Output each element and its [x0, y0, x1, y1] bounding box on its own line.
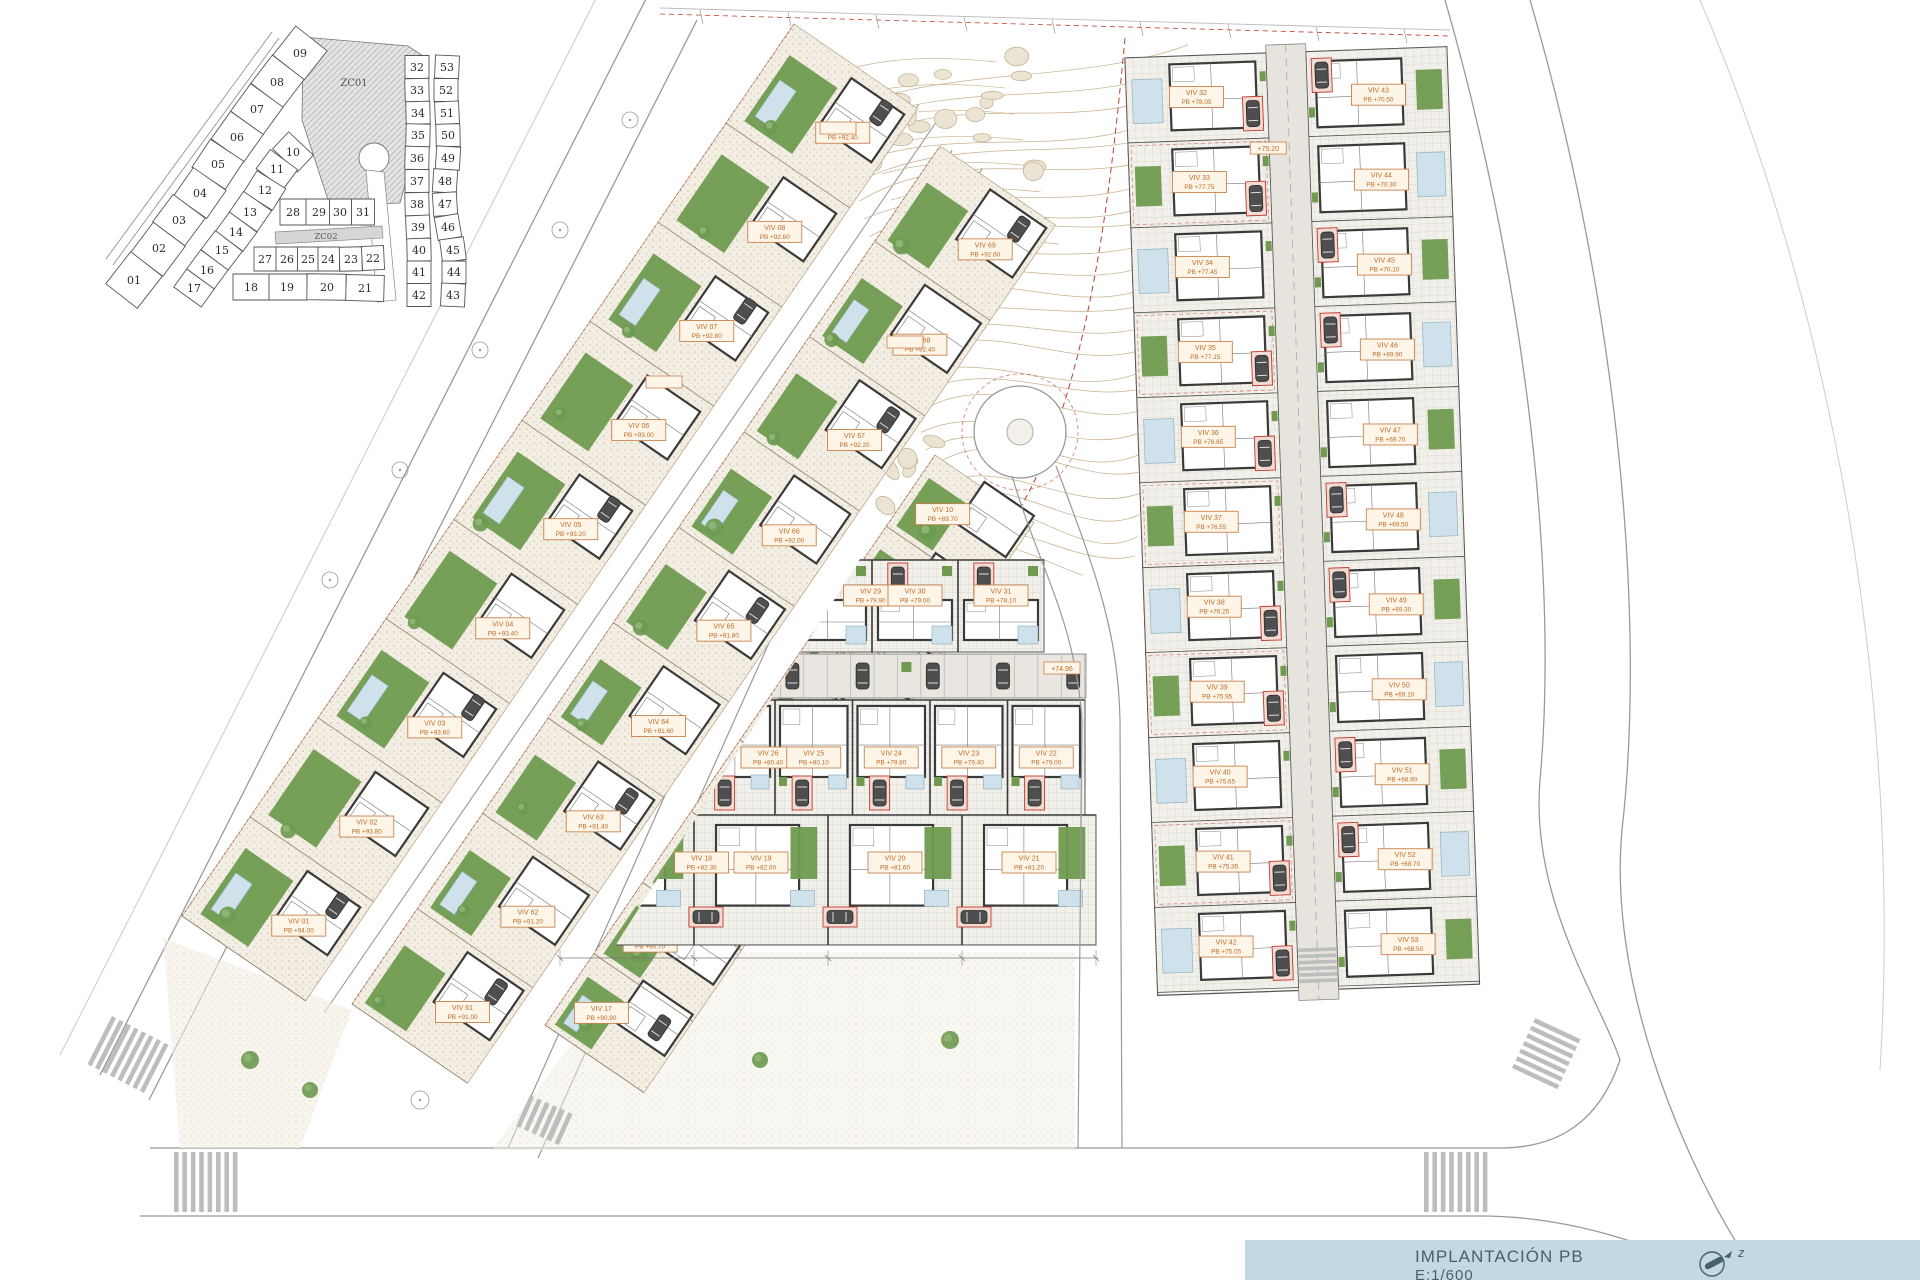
villa-label: VIV 38PB +76.25 [1187, 596, 1241, 617]
car-icon [997, 663, 1010, 689]
svg-text:PB +78.05: PB +78.05 [1181, 99, 1211, 106]
tree-icon [554, 408, 567, 421]
svg-text:PB +77.45: PB +77.45 [1187, 269, 1217, 276]
svg-text:13: 13 [243, 206, 257, 219]
svg-text:50: 50 [441, 129, 455, 142]
keyplan-band: 28293031 [280, 199, 375, 225]
svg-text:PB +92.60: PB +92.60 [970, 251, 1000, 258]
villa-label: VIV 41PB +75.35 [1196, 851, 1250, 872]
svg-text:PB +91.00: PB +91.00 [448, 1014, 478, 1021]
tree-icon [705, 519, 723, 537]
svg-text:VIV 22: VIV 22 [1036, 751, 1057, 758]
car-icon [1321, 232, 1335, 258]
svg-text:+74.96: +74.96 [1051, 666, 1073, 673]
svg-text:43: 43 [446, 289, 460, 302]
car-icon [856, 663, 869, 689]
villa-label: VIV 04PB +93.40 [476, 618, 530, 639]
svg-text:PB +93.20: PB +93.20 [556, 531, 586, 538]
villa-label: VIV 67PB +92.20 [828, 430, 882, 451]
svg-text:PB +92.20: PB +92.20 [840, 442, 870, 449]
svg-text:VIV 44: VIV 44 [1371, 173, 1392, 180]
svg-text:27: 27 [258, 253, 272, 266]
svg-text:PB +68.50: PB +68.50 [1393, 946, 1423, 953]
car-icon [1276, 950, 1290, 976]
svg-text:VIV 42: VIV 42 [1216, 940, 1237, 947]
villa-label: VIV 22PB +79.00 [1019, 747, 1073, 768]
villa-label: VIV 23PB +79.40 [942, 747, 996, 768]
villa-label: VIV 06PB +93.00 [612, 420, 666, 441]
villa-label: VIV 34PB +77.45 [1175, 256, 1229, 277]
svg-text:36: 36 [410, 152, 424, 165]
svg-text:VIV 45: VIV 45 [1374, 258, 1395, 265]
villa-label: VIV 03PB +93.60 [408, 717, 462, 738]
svg-text:VIV 48: VIV 48 [1383, 512, 1404, 519]
keyplan-band: 3233343536373839404142 [405, 56, 431, 307]
svg-text:PB +78.10: PB +78.10 [986, 598, 1016, 605]
svg-text:12: 12 [258, 184, 272, 197]
tree-icon [941, 1031, 959, 1049]
svg-text:07: 07 [250, 103, 264, 116]
villa-label: VIV 66PB +92.00 [762, 525, 816, 546]
svg-text:VIV 25: VIV 25 [803, 751, 824, 758]
svg-text:+75.20: +75.20 [1257, 146, 1279, 153]
svg-text:PB +79.40: PB +79.40 [954, 760, 984, 767]
drawing-scale: E:1/600 [1415, 1267, 1584, 1280]
parking-pad [1272, 946, 1293, 981]
villa-label: VIV 02PB +93.80 [340, 816, 394, 837]
tree-icon [373, 995, 386, 1008]
architectural-site-plan: VIV 01PB +94.00VIV 02PB +93.80VIV 03PB +… [0, 0, 1920, 1280]
villa-label: VIV 47PB +69.70 [1363, 424, 1417, 445]
svg-text:VIV 24: VIV 24 [881, 751, 902, 758]
villa-label: VIV 64PB +91.60 [632, 716, 686, 737]
elevation-marker: +74.96 [1044, 662, 1080, 674]
svg-text:PB +82.00: PB +82.00 [746, 865, 776, 872]
svg-text:VIV 43: VIV 43 [1368, 88, 1389, 95]
svg-text:31: 31 [356, 206, 370, 219]
parking-pad [1320, 313, 1341, 348]
tree-icon [241, 1051, 259, 1069]
svg-text:PB +80.10: PB +80.10 [799, 760, 829, 767]
svg-text:15: 15 [215, 244, 229, 257]
car-icon [796, 780, 809, 806]
elevation-marker [646, 376, 682, 388]
tree-icon [633, 620, 649, 636]
car-icon [926, 663, 939, 689]
svg-text:VIV 50: VIV 50 [1389, 682, 1410, 689]
svg-text:53: 53 [440, 61, 454, 74]
car-icon [786, 663, 799, 689]
svg-text:PB +92.00: PB +92.00 [774, 537, 804, 544]
tree-icon [697, 225, 712, 240]
parking-pad [823, 907, 857, 927]
svg-text:28: 28 [286, 206, 300, 219]
svg-text:PB +93.00: PB +93.00 [624, 432, 654, 439]
car-icon [827, 911, 853, 924]
svg-text:18: 18 [244, 281, 258, 294]
svg-text:VIV 29: VIV 29 [860, 589, 881, 596]
svg-text:30: 30 [333, 206, 347, 219]
parking-pad [957, 907, 991, 927]
svg-text:PB +79.90: PB +79.90 [856, 598, 886, 605]
svg-text:19: 19 [280, 281, 294, 294]
svg-text:VIV 69: VIV 69 [975, 242, 996, 249]
svg-text:14: 14 [229, 226, 243, 239]
svg-text:PB +69.50: PB +69.50 [1378, 521, 1408, 528]
svg-text:VIV 10: VIV 10 [932, 507, 953, 514]
crosswalk [1512, 1018, 1581, 1089]
tree-outline-icon [411, 1091, 429, 1109]
car-icon [1273, 865, 1287, 891]
svg-text:PB +92.60: PB +92.60 [760, 234, 790, 241]
svg-text:VIV 01: VIV 01 [288, 919, 309, 926]
svg-text:VIV 40: VIV 40 [1210, 770, 1231, 777]
svg-text:VIV 38: VIV 38 [1204, 600, 1225, 607]
tree-icon [576, 718, 589, 731]
svg-text:21: 21 [358, 282, 372, 295]
tree-icon [919, 523, 937, 541]
svg-text:VIV 46: VIV 46 [1377, 343, 1398, 350]
svg-text:PB +76.25: PB +76.25 [1199, 609, 1229, 616]
parking-pad [1338, 822, 1359, 857]
svg-text:VIV 53: VIV 53 [1398, 937, 1419, 944]
parking-pad [870, 776, 890, 810]
svg-text:PB +75.05: PB +75.05 [1211, 949, 1241, 956]
parking-pad [1242, 96, 1263, 131]
car-icon [1028, 780, 1041, 806]
svg-text:20: 20 [320, 281, 334, 294]
crosswalk [174, 1152, 237, 1212]
tree-outline-icon [392, 462, 408, 478]
svg-text:17: 17 [187, 282, 201, 295]
svg-text:PB +69.10: PB +69.10 [1384, 691, 1414, 698]
villa-label: VIV 48PB +69.50 [1366, 509, 1420, 530]
villa-label: VIV 53PB +68.50 [1381, 934, 1435, 955]
svg-text:26: 26 [280, 253, 294, 266]
elevation-marker [820, 122, 856, 134]
tree-icon [457, 904, 470, 917]
svg-text:45: 45 [446, 244, 460, 257]
svg-text:VIV 64: VIV 64 [648, 719, 669, 726]
tree-icon [219, 907, 237, 925]
tree-icon [752, 1052, 768, 1068]
svg-text:VIV 37: VIV 37 [1201, 515, 1222, 522]
tree-icon [516, 802, 529, 815]
svg-text:40: 40 [412, 244, 426, 257]
svg-text:PB +81.60: PB +81.60 [880, 865, 910, 872]
svg-text:VIV 08: VIV 08 [764, 225, 785, 232]
svg-text:PB +68.70: PB +68.70 [1390, 861, 1420, 868]
parking-pad [1263, 691, 1284, 726]
svg-text:PB +90.90: PB +90.90 [586, 1015, 616, 1022]
villa-label: VIV 20PB +81.60 [868, 852, 922, 873]
villa-label: VIV 24PB +79.80 [864, 747, 918, 768]
tree-icon [824, 332, 838, 346]
svg-text:VIV 21: VIV 21 [1018, 856, 1039, 863]
villa-label: VIV 43PB +70.50 [1351, 84, 1405, 105]
svg-text:49: 49 [441, 152, 455, 165]
car-icon [1330, 487, 1344, 513]
villa-label: VIV 05PB +93.20 [544, 519, 598, 540]
svg-text:VIV 26: VIV 26 [758, 751, 779, 758]
villa-label: VIV 40PB +75.65 [1193, 766, 1247, 787]
svg-text:34: 34 [411, 107, 425, 120]
tree-icon [893, 237, 911, 255]
villa-label: VIV 51PB +68.90 [1375, 764, 1429, 785]
svg-text:16: 16 [200, 264, 214, 277]
parking-pad [947, 776, 967, 810]
svg-text:VIV 07: VIV 07 [696, 324, 717, 331]
svg-text:PB +93.80: PB +93.80 [352, 829, 382, 836]
villa-label: VIV 50PB +69.10 [1372, 679, 1426, 700]
car-icon [1341, 826, 1355, 852]
villa-label: VIV 32PB +78.05 [1169, 87, 1223, 108]
svg-text:VIV 03: VIV 03 [424, 720, 445, 727]
svg-text:23: 23 [344, 253, 358, 266]
tree-icon [280, 823, 296, 839]
car-icon [1315, 62, 1329, 88]
svg-text:PB +91.20: PB +91.20 [513, 919, 543, 926]
svg-text:PB +79.80: PB +79.80 [876, 760, 906, 767]
svg-text:VIV 52: VIV 52 [1395, 852, 1416, 859]
car-icon [1255, 355, 1269, 381]
svg-text:VIV 31: VIV 31 [990, 589, 1011, 596]
parking-pad [1329, 567, 1350, 602]
svg-text:06: 06 [230, 131, 244, 144]
parking-pad [1269, 861, 1290, 896]
car-icon [951, 780, 964, 806]
tree-icon [302, 1082, 318, 1098]
car-icon [1246, 100, 1260, 126]
svg-text:VIV 19: VIV 19 [750, 856, 771, 863]
svg-text:02: 02 [152, 242, 166, 255]
parking-pad [1254, 436, 1275, 471]
villa-label: VIV 61PB +91.00 [436, 1002, 490, 1023]
north-label: z [1737, 1245, 1745, 1260]
svg-text:VIV 62: VIV 62 [517, 910, 538, 917]
svg-text:PB +75.35: PB +75.35 [1208, 864, 1238, 871]
svg-text:PB +69.70: PB +69.70 [1375, 436, 1405, 443]
parking-pad [1317, 228, 1338, 263]
svg-text:41: 41 [412, 266, 426, 279]
svg-text:42: 42 [412, 289, 426, 302]
villa-label: VIV 62PB +91.20 [501, 906, 555, 927]
villa-label: VIV 18PB +82.30 [675, 852, 729, 873]
svg-text:PB +89.70: PB +89.70 [928, 516, 958, 523]
villa-label: VIV 33PB +77.75 [1172, 171, 1226, 192]
tree-icon [408, 617, 421, 630]
svg-text:PB +75.95: PB +75.95 [1202, 694, 1232, 701]
svg-text:PB +76.55: PB +76.55 [1196, 524, 1226, 531]
villa-label: VIV 45PB +70.10 [1357, 254, 1411, 275]
svg-text:PB +92.80: PB +92.80 [692, 333, 722, 340]
crosswalk [87, 1016, 168, 1093]
svg-text:PB +94.00: PB +94.00 [284, 928, 314, 935]
svg-text:VIV 41: VIV 41 [1213, 855, 1234, 862]
svg-text:39: 39 [411, 221, 425, 234]
car-icon [1258, 440, 1272, 466]
svg-text:29: 29 [312, 206, 326, 219]
tree-icon [622, 325, 635, 338]
villa-label: VIV 01PB +94.00 [272, 915, 326, 936]
svg-text:PB +69.30: PB +69.30 [1381, 606, 1411, 613]
svg-text:09: 09 [293, 47, 307, 60]
parking-pad [1326, 483, 1347, 518]
svg-text:35: 35 [411, 129, 425, 142]
svg-text:VIV 67: VIV 67 [844, 433, 865, 440]
svg-text:VIV 47: VIV 47 [1380, 427, 1401, 434]
villa-label: VIV 52PB +68.70 [1378, 849, 1432, 870]
site-plan-drawing: VIV 01PB +94.00VIV 02PB +93.80VIV 03PB +… [0, 0, 1920, 1280]
keyplan-band: 18192021 [233, 274, 384, 302]
svg-text:VIV 66: VIV 66 [779, 528, 800, 535]
villa-label: VIV 36PB +76.85 [1181, 426, 1235, 447]
svg-text:48: 48 [438, 175, 452, 188]
svg-text:ZC02: ZC02 [314, 232, 337, 242]
tree-icon [767, 432, 781, 446]
svg-text:PB +91.80: PB +91.80 [709, 633, 739, 640]
svg-text:03: 03 [172, 214, 186, 227]
svg-text:VIV 33: VIV 33 [1189, 175, 1210, 182]
svg-text:VIV 35: VIV 35 [1195, 345, 1216, 352]
svg-text:PB +77.75: PB +77.75 [1184, 184, 1214, 191]
car-icon [1339, 742, 1353, 768]
parking-pad [689, 907, 723, 927]
villa-label: VIV 63PB +91.40 [566, 811, 620, 832]
svg-text:PB +70.50: PB +70.50 [1363, 97, 1393, 104]
svg-text:47: 47 [438, 198, 452, 211]
car-icon [1264, 610, 1278, 636]
svg-text:PB +70.10: PB +70.10 [1369, 267, 1399, 274]
svg-text:VIV 39: VIV 39 [1207, 685, 1228, 692]
keyplan-band: 272625242322 [254, 246, 385, 272]
parking-pad [1251, 351, 1272, 386]
villa-label: VIV 19PB +82.00 [734, 852, 788, 873]
svg-text:11: 11 [270, 163, 284, 176]
svg-text:VIV 18: VIV 18 [691, 856, 712, 863]
car-icon [718, 780, 731, 806]
svg-text:VIV 51: VIV 51 [1392, 767, 1413, 774]
tree-icon [473, 516, 489, 532]
north-arrow-icon: z [1690, 1245, 1754, 1279]
svg-text:51: 51 [440, 107, 454, 120]
svg-text:01: 01 [127, 274, 141, 287]
svg-text:PB +75.65: PB +75.65 [1205, 779, 1235, 786]
villa-label: VIV 49PB +69.30 [1369, 594, 1423, 615]
svg-text:PB +82.30: PB +82.30 [687, 865, 717, 872]
svg-text:VIV 34: VIV 34 [1192, 260, 1213, 267]
villa-label: VIV 25PB +80.10 [787, 747, 841, 768]
svg-text:VIV 36: VIV 36 [1198, 430, 1219, 437]
svg-text:PB +93.60: PB +93.60 [420, 729, 450, 736]
svg-text:PB +91.40: PB +91.40 [578, 823, 608, 830]
svg-text:PB +81.20: PB +81.20 [1014, 865, 1044, 872]
car-icon [1267, 695, 1281, 721]
svg-text:24: 24 [321, 253, 335, 266]
parking-pad [1311, 58, 1332, 93]
svg-text:PB +76.85: PB +76.85 [1193, 439, 1223, 446]
svg-text:PB +80.40: PB +80.40 [753, 760, 783, 767]
drawing-title: IMPLANTACIÓN PB [1415, 1246, 1584, 1267]
villa-label: VIV 39PB +75.95 [1190, 681, 1244, 702]
parking-pad [1260, 606, 1281, 641]
tree-icon [764, 120, 778, 134]
svg-text:PB +77.15: PB +77.15 [1190, 354, 1220, 361]
villa-label: VIV 17PB +90.90 [574, 1002, 628, 1023]
car-icon [1324, 317, 1338, 343]
parking-pad [792, 776, 812, 810]
title-block: IMPLANTACIÓN PB E:1/600 z [1245, 1240, 1920, 1280]
tree-outline-icon [552, 222, 568, 238]
car-icon [1249, 185, 1263, 211]
svg-text:10: 10 [286, 146, 300, 159]
car-icon [873, 780, 886, 806]
svg-text:PB +93.40: PB +93.40 [488, 630, 518, 637]
svg-text:PB +79.00: PB +79.00 [1031, 760, 1061, 767]
svg-text:PB +79.00: PB +79.00 [900, 598, 930, 605]
svg-text:32: 32 [410, 61, 424, 74]
svg-text:04: 04 [193, 187, 207, 200]
elevation-marker: +75.20 [1250, 142, 1286, 154]
svg-text:VIV 65: VIV 65 [713, 624, 734, 631]
svg-text:37: 37 [410, 175, 424, 188]
parking-pad [1335, 737, 1356, 772]
villa-label: VIV 31PB +78.10 [974, 585, 1028, 606]
svg-text:VIV 17: VIV 17 [591, 1006, 612, 1013]
svg-text:46: 46 [441, 221, 455, 234]
svg-text:38: 38 [410, 198, 424, 211]
crosswalk [1424, 1152, 1487, 1212]
svg-text:VIV 06: VIV 06 [628, 423, 649, 430]
svg-text:PB +70.30: PB +70.30 [1366, 182, 1396, 189]
svg-text:VIV 04: VIV 04 [492, 621, 513, 628]
car-icon [961, 911, 987, 924]
villa-label: VIV 08PB +92.60 [748, 221, 802, 242]
villa-label: VIV 37PB +76.55 [1184, 511, 1238, 532]
villa-label: VIV 30PB +79.00 [888, 585, 942, 606]
villa-label: VIV 69PB +92.60 [958, 239, 1012, 260]
villa-label: VIV 10PB +89.70 [916, 504, 970, 525]
car-icon [693, 911, 719, 924]
svg-text:33: 33 [410, 84, 424, 97]
svg-text:VIV 23: VIV 23 [958, 751, 979, 758]
svg-text:08: 08 [270, 76, 284, 89]
svg-text:PB +68.90: PB +68.90 [1387, 776, 1417, 783]
parking-pad [1025, 776, 1045, 810]
svg-text:VIV 32: VIV 32 [1186, 90, 1207, 97]
villa-label: VIV 21PB +81.20 [1002, 852, 1056, 873]
parking-pad [1245, 181, 1266, 216]
svg-text:VIV 61: VIV 61 [452, 1005, 473, 1012]
svg-text:05: 05 [211, 158, 225, 171]
svg-text:25: 25 [301, 253, 315, 266]
elevation-marker [887, 336, 923, 348]
svg-text:22: 22 [366, 252, 380, 265]
svg-text:PB +92.40: PB +92.40 [828, 135, 858, 142]
svg-text:VIV 02: VIV 02 [356, 820, 377, 827]
svg-text:PB +69.90: PB +69.90 [1372, 352, 1402, 359]
svg-text:VIV 30: VIV 30 [904, 589, 925, 596]
villa-label: VIV 07PB +92.80 [680, 320, 734, 341]
svg-text:VIV 49: VIV 49 [1386, 597, 1407, 604]
tree-icon [360, 716, 372, 728]
villa-label: VIV 46PB +69.90 [1360, 339, 1414, 360]
svg-text:PB +91.60: PB +91.60 [644, 728, 674, 735]
title-block-text: IMPLANTACIÓN PB E:1/600 [1415, 1246, 1584, 1280]
keyplan-band: 5352515049484746454443 [432, 55, 466, 307]
svg-text:52: 52 [439, 84, 453, 97]
car-icon [1333, 572, 1347, 598]
